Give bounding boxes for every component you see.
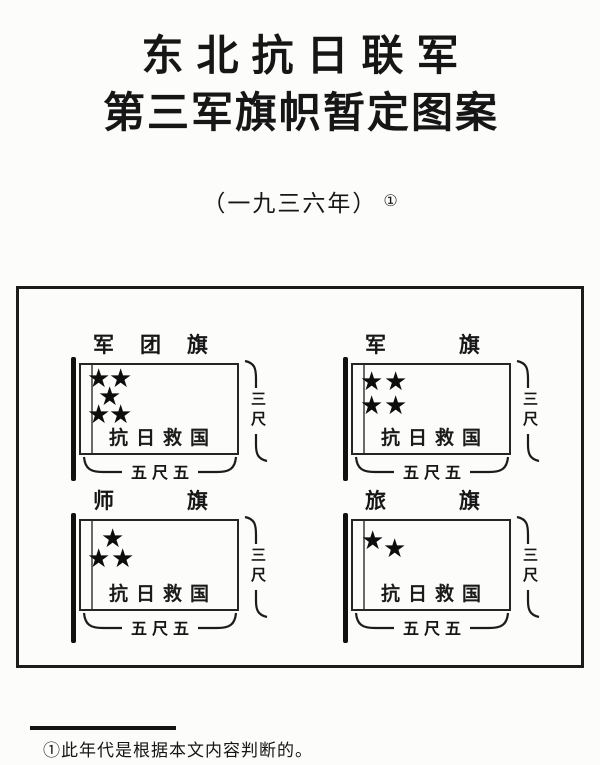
- height-dimension: 三尺: [243, 515, 269, 619]
- flag-group-army: 军旗 ★★★★ 抗日救国 三尺 五尺五: [331, 329, 561, 499]
- subtitle: （一九三六年）①: [0, 184, 600, 218]
- footnote-marker: ①: [43, 741, 61, 760]
- flag-canvas: ★★★★ 抗日救国: [351, 363, 511, 455]
- title-line1: 东北抗日联军: [0, 22, 600, 83]
- width-label: 五尺五: [394, 459, 470, 483]
- footnote: ①此年代是根据本文内容判断的。: [43, 736, 313, 761]
- flag-group-division: 师旗 ★★★ 抗日救国 三尺 五尺五: [59, 485, 289, 655]
- star-icon: ★: [360, 392, 383, 418]
- flag-label: 师旗: [93, 485, 208, 515]
- star-icon: ★: [87, 545, 110, 571]
- height-dimension: 三尺: [515, 515, 541, 619]
- flag-group-corps: 军团旗 ★★★★★ 抗日救国 三尺 五尺五: [59, 329, 289, 499]
- height-label: 三尺: [518, 544, 541, 590]
- flagpole: [343, 357, 348, 481]
- height-dimension: 三尺: [515, 359, 541, 463]
- height-label: 三尺: [518, 388, 541, 434]
- height-label: 三尺: [246, 388, 269, 434]
- flag-slogan: 抗日救国: [81, 423, 237, 450]
- flag-slogan: 抗日救国: [81, 579, 237, 606]
- width-dimension: 五尺五: [81, 611, 239, 637]
- footnote-text: 此年代是根据本文内容判断的。: [61, 741, 313, 760]
- flag-canvas: ★★★★★ 抗日救国: [79, 363, 239, 455]
- flag-canvas: ★★ 抗日救国: [351, 519, 511, 611]
- star-icon: ★: [361, 527, 384, 553]
- flag-group-brigade: 旅旗 ★★ 抗日救国 三尺 五尺五: [331, 485, 561, 655]
- footnote-divider: [30, 726, 176, 730]
- height-label: 三尺: [246, 544, 269, 590]
- star-icon: ★: [384, 392, 407, 418]
- flagpole: [343, 513, 348, 643]
- flag-label: 军团旗: [93, 329, 208, 359]
- star-icon: ★: [383, 535, 406, 561]
- flagpole: [71, 357, 76, 481]
- star-icon: ★: [111, 545, 134, 571]
- width-label: 五尺五: [122, 615, 198, 639]
- width-label: 五尺五: [122, 459, 198, 483]
- width-dimension: 五尺五: [353, 611, 511, 637]
- flag-slogan: 抗日救国: [353, 579, 509, 606]
- flag-diagram-box: 军团旗 ★★★★★ 抗日救国 三尺 五尺五 军旗: [16, 286, 584, 668]
- flag-slogan: 抗日救国: [353, 423, 509, 450]
- flag-label: 旅旗: [365, 485, 480, 515]
- flag-canvas: ★★★ 抗日救国: [79, 519, 239, 611]
- flagpole: [71, 513, 76, 643]
- flag-label: 军旗: [365, 329, 480, 359]
- width-label: 五尺五: [394, 615, 470, 639]
- document-page: 东北抗日联军 第三军旗帜暂定图案 （一九三六年）① 军团旗 ★★★★★ 抗日救国…: [0, 0, 600, 765]
- footnote-ref-mark: ①: [383, 193, 397, 210]
- width-dimension: 五尺五: [81, 455, 239, 481]
- title-line2: 第三军旗帜暂定图案: [0, 79, 600, 140]
- subtitle-year: （一九三六年）: [202, 190, 377, 216]
- height-dimension: 三尺: [243, 359, 269, 463]
- width-dimension: 五尺五: [353, 455, 511, 481]
